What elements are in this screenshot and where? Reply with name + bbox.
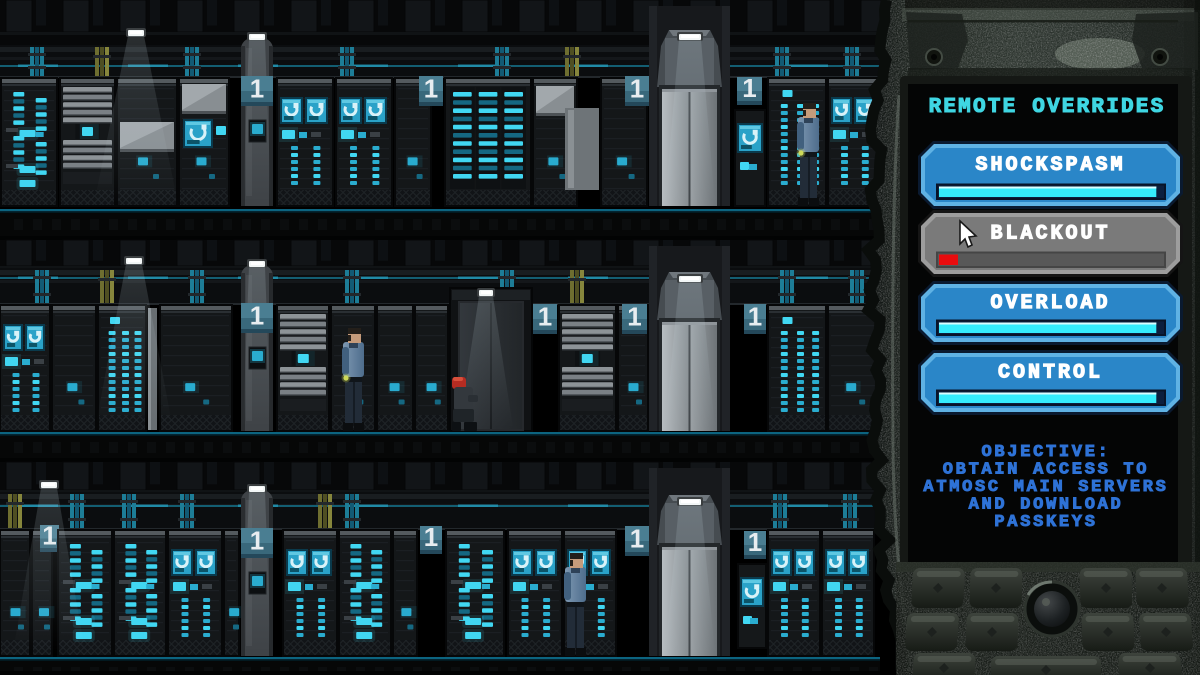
svg-text:OVERLOAD: OVERLOAD — [990, 292, 1110, 315]
svg-text:SHOCKSPASM: SHOCKSPASM — [975, 154, 1125, 177]
svg-text:1: 1 — [627, 302, 641, 332]
svg-text:1: 1 — [630, 74, 644, 104]
svg-text:1: 1 — [538, 302, 552, 332]
svg-text:1: 1 — [742, 73, 756, 103]
svg-text:BLACKOUT: BLACKOUT — [990, 223, 1110, 246]
svg-text:1: 1 — [250, 74, 264, 104]
svg-text:OBJECTIVE:: OBJECTIVE: — [981, 443, 1110, 462]
svg-text:PASSKEYS: PASSKEYS — [994, 513, 1097, 532]
svg-text:REMOTE OVERRIDES: REMOTE OVERRIDES — [929, 96, 1166, 119]
svg-text:1: 1 — [250, 526, 264, 556]
svg-text:OBTAIN ACCESS TO: OBTAIN ACCESS TO — [943, 461, 1149, 480]
svg-text:AND DOWNLOAD: AND DOWNLOAD — [969, 496, 1124, 515]
svg-text:CONTROL: CONTROL — [998, 362, 1103, 385]
svg-text:1: 1 — [748, 527, 762, 557]
svg-text:ATMOSC MAIN SERVERS: ATMOSC MAIN SERVERS — [923, 478, 1168, 497]
svg-text:1: 1 — [424, 522, 438, 552]
svg-text:1: 1 — [424, 74, 438, 104]
svg-text:1: 1 — [748, 302, 762, 332]
svg-text:1: 1 — [250, 301, 264, 331]
svg-text:1: 1 — [630, 524, 644, 554]
